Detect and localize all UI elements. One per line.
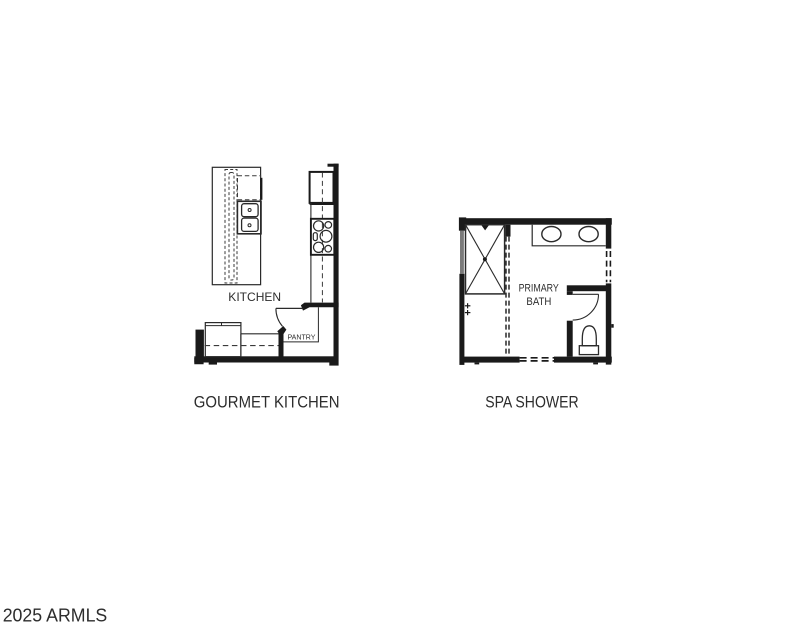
svg-text:GOURMET KITCHEN: GOURMET KITCHEN	[194, 392, 340, 411]
svg-text:PRIMARY: PRIMARY	[519, 282, 560, 294]
svg-text:KITCHEN: KITCHEN	[228, 291, 281, 304]
svg-text:PANTRY: PANTRY	[288, 332, 316, 341]
svg-text:BATH: BATH	[526, 296, 551, 308]
svg-text:2025 ARMLS: 2025 ARMLS	[3, 605, 108, 626]
svg-text:SPA SHOWER: SPA SHOWER	[485, 392, 579, 411]
